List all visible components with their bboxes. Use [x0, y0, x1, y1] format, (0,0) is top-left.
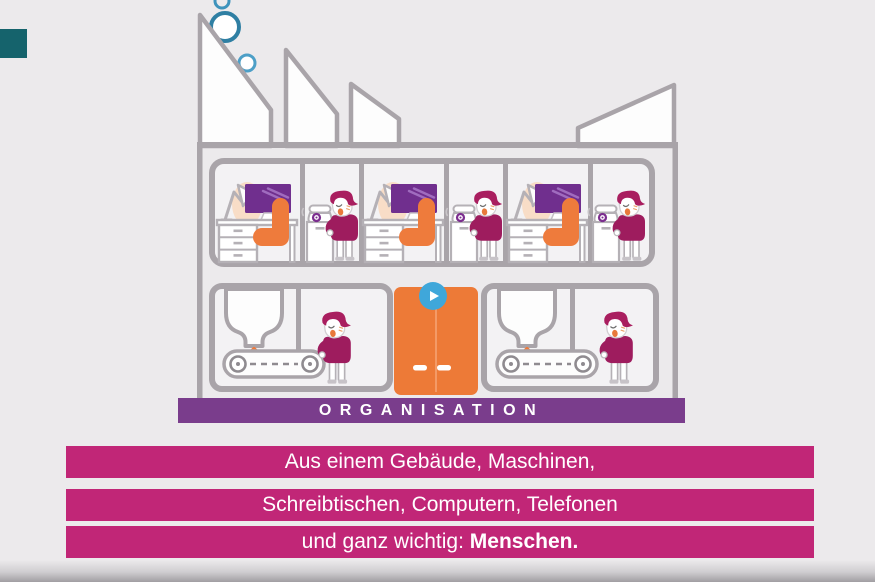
organisation-banner: ORGANISATION	[178, 398, 685, 423]
caption-line3-emphasis: Menschen.	[470, 530, 579, 554]
conveyor-belt-icon	[224, 351, 324, 377]
roof-line	[197, 142, 678, 148]
caption-bar-3: und ganz wichtig: Menschen.	[66, 526, 814, 558]
caption-line3-prefix: und ganz wichtig:	[302, 530, 470, 554]
conveyor-belt-icon	[497, 351, 597, 377]
play-button[interactable]	[419, 282, 447, 310]
play-icon	[430, 291, 439, 301]
caption-bar-1: Aus einem Gebäude, Maschinen,	[66, 446, 814, 478]
bottom-gradient-strip	[0, 560, 875, 582]
video-frame: ORGANISATION Aus einem Gebäude, Maschine…	[0, 0, 875, 582]
teal-corner-shape	[0, 29, 27, 58]
caption-bar-2: Schreibtischen, Computern, Telefonen	[66, 489, 814, 521]
factory-roof	[200, 15, 674, 146]
organisation-building-illustration	[0, 0, 875, 440]
office-floor	[212, 161, 652, 264]
